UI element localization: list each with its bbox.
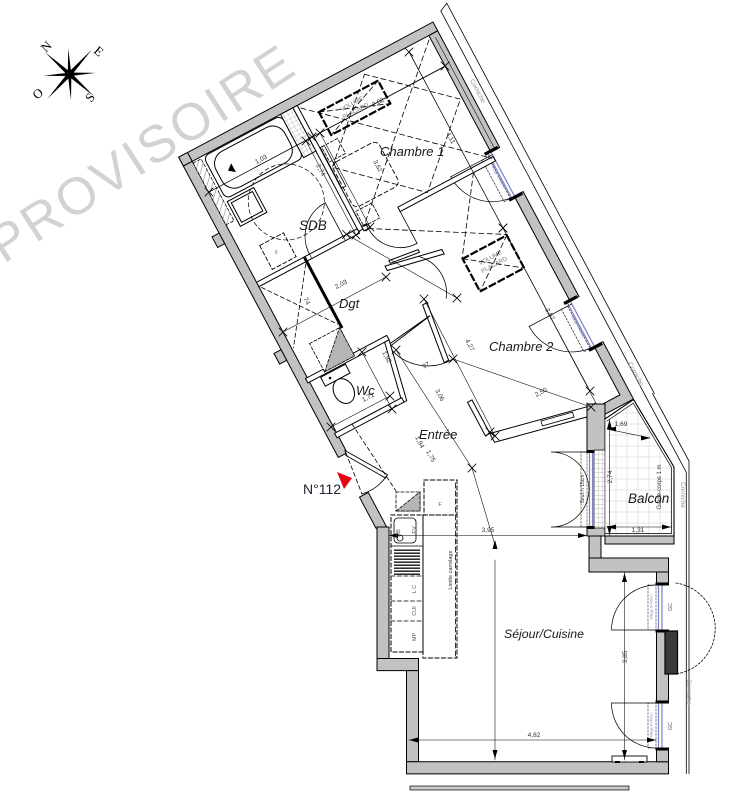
svg-text:Chambre 1: Chambre 1 (380, 144, 444, 159)
svg-text:Allège h=45cm: Allège h=45cm (650, 712, 654, 737)
svg-text:Entrée: Entrée (419, 427, 457, 442)
svg-text:MP: MP (412, 633, 418, 642)
svg-text:Limite carrelage: Limite carrelage (448, 550, 454, 589)
svg-text:N°112: N°112 (303, 481, 341, 497)
svg-text:Corniche: Corniche (685, 679, 692, 705)
svg-text:Balcon: Balcon (628, 491, 669, 506)
svg-text:CUI: CUI (412, 606, 418, 616)
svg-text:GC: GC (668, 722, 674, 730)
svg-text:Seuil h 15cm: Seuil h 15cm (580, 475, 586, 504)
svg-text:3,85: 3,85 (622, 650, 629, 663)
svg-text:L C: L C (412, 585, 418, 593)
svg-text:1,69: 1,69 (615, 421, 628, 428)
svg-text:EV: EV (412, 526, 418, 534)
svg-text:Garde-corps 1 m: Garde-corps 1 m (657, 464, 663, 509)
svg-text:Séjour/Cuisine: Séjour/Cuisine (504, 627, 584, 641)
svg-text:3,95: 3,95 (482, 527, 495, 534)
svg-text:1,31: 1,31 (632, 527, 645, 534)
svg-text:RB: RB (396, 529, 402, 537)
svg-text:GC: GC (668, 603, 674, 611)
svg-text:SDB: SDB (299, 218, 327, 233)
svg-text:4,82: 4,82 (528, 732, 541, 739)
svg-text:Corniche: Corniche (679, 482, 686, 508)
svg-text:Allège h=45cm: Allège h=45cm (650, 594, 654, 619)
svg-text:Dgt: Dgt (339, 296, 361, 311)
svg-text:Chambre 2: Chambre 2 (489, 339, 554, 354)
svg-text:2,74: 2,74 (607, 470, 614, 483)
